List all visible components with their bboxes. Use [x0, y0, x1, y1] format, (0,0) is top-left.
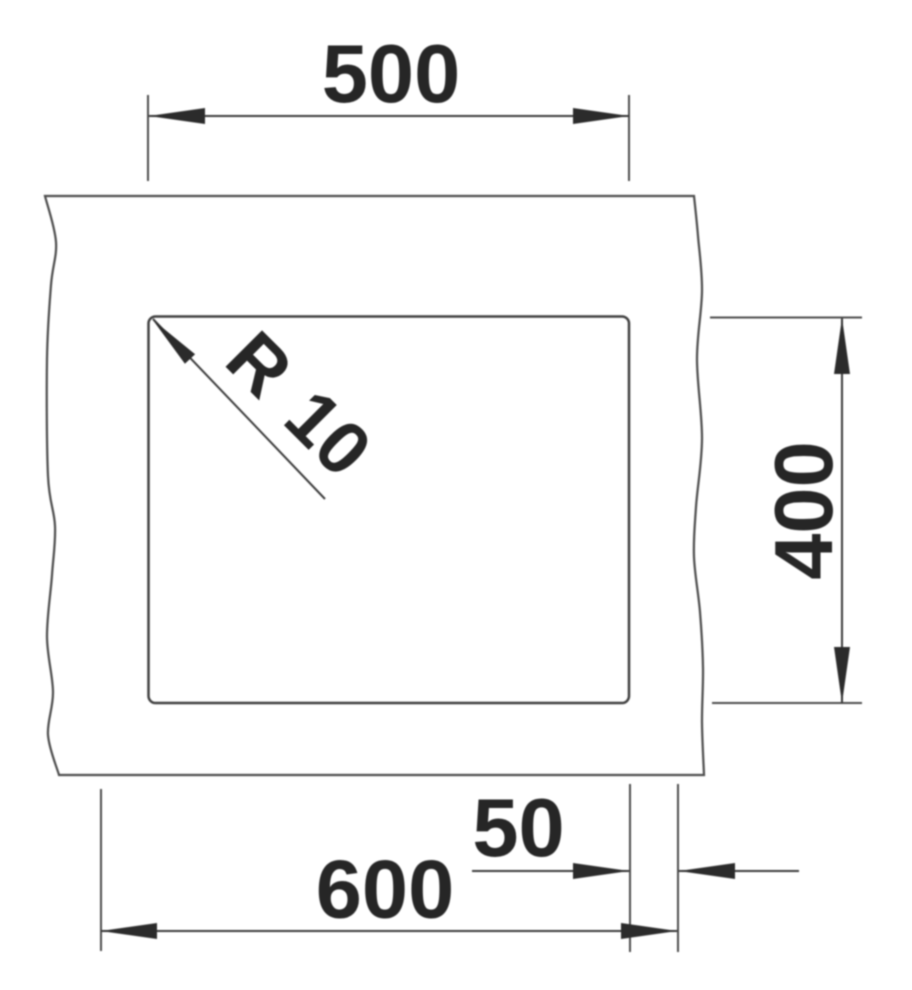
svg-text:400: 400	[757, 441, 850, 579]
svg-text:600: 600	[316, 843, 454, 936]
svg-text:500: 500	[322, 27, 460, 120]
svg-text:50: 50	[472, 781, 564, 874]
